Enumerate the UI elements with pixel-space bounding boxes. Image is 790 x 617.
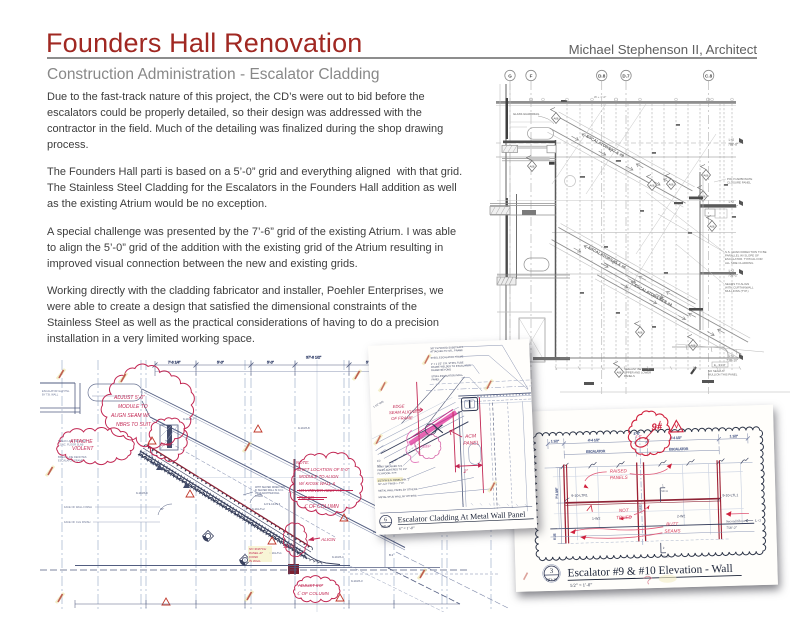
svg-text:L+0: L+0 [729, 354, 735, 358]
svg-text:SD-11: SD-11 [662, 555, 669, 558]
svg-text:EDGE: EDGE [393, 403, 405, 409]
svg-text:1 1/2”: 1 1/2” [730, 434, 738, 438]
svg-text:L+0: L+0 [729, 138, 735, 142]
svg-text:6: 6 [384, 517, 387, 523]
svg-text:9-10-PL8: 9-10-PL8 [298, 426, 310, 430]
svg-text:SHIM: SHIM [161, 442, 172, 447]
svg-text:9-10-LTL1: 9-10-LTL1 [722, 493, 738, 497]
svg-text:BUTT: BUTT [666, 521, 679, 526]
svg-text:A66: A66 [617, 370, 622, 374]
svg-text:B.2: B.2 [389, 553, 394, 557]
svg-text:NBRS TO SUIT: NBRS TO SUIT [116, 422, 152, 428]
svg-text:7’-6 1/4”: 7’-6 1/4” [168, 361, 180, 365]
svg-text:PANEL: PANEL [431, 378, 440, 381]
svg-text:W/ KIOSK WALL &: W/ KIOSK WALL & [299, 481, 336, 486]
svg-text:11¼: 11¼ [283, 544, 294, 550]
svg-text:ALL SIDE CLADDING: ALL SIDE CLADDING [725, 261, 754, 265]
svg-text:6” = 1’-0”: 6” = 1’-0” [399, 526, 415, 531]
svg-text:1 1/2”: 1 1/2” [551, 439, 559, 443]
svg-text:788’-8”: 788’-8” [728, 143, 738, 147]
svg-text:IN WALL: IN WALL [249, 559, 261, 563]
svg-text:ℂ OF COLUMN: ℂ OF COLUMN [304, 504, 339, 510]
svg-text:SD-11: SD-11 [661, 490, 668, 493]
svg-text:QD-10: QD-10 [546, 577, 557, 582]
svg-text:A66: A66 [530, 164, 535, 168]
svg-text:E - 3 1/4”: E - 3 1/4” [714, 363, 726, 367]
svg-text:9-10-PL3: 9-10-PL3 [351, 579, 363, 583]
svg-text:A66: A66 [650, 183, 655, 187]
svg-text:D.7: D.7 [622, 73, 630, 78]
svg-text:D.8: D.8 [598, 73, 606, 78]
svg-text:9-10-PL9: 9-10-PL9 [136, 491, 148, 495]
svg-text:ESCALATOR: ESCALATOR [586, 449, 606, 454]
svg-text:5’-0”: 5’-0” [267, 361, 274, 365]
svg-text:ADJUST 5’-0”: ADJUST 5’-0” [113, 395, 145, 401]
svg-text:1/2” = 1’-0”: 1/2” = 1’-0” [570, 582, 593, 588]
svg-text:7’-1 3/4”: 7’-1 3/4” [555, 488, 559, 499]
svg-text:ALIGN SEAM W/: ALIGN SEAM W/ [110, 413, 150, 419]
svg-text:FACE OF WALL FINISH: FACE OF WALL FINISH [64, 505, 92, 509]
svg-text:MULLIONS (TYP.): MULLIONS (TYP.) [725, 289, 749, 293]
svg-text:ATTACHE: ATTACHE [69, 439, 93, 445]
svg-text:A66: A66 [554, 116, 559, 120]
svg-text:QD-11: QD-11 [381, 524, 391, 528]
svg-text:2”: 2” [462, 469, 468, 475]
svg-text:F: F [530, 73, 533, 78]
svg-text:C.8: C.8 [705, 73, 713, 78]
svg-text:ℂ OF COLUMN: ℂ OF COLUMN [297, 591, 330, 596]
svg-text:GRID: GRID [638, 504, 642, 511]
svg-text:ACM: ACM [464, 433, 477, 440]
svg-text:4’-4 1/2”: 4’-4 1/2” [588, 438, 600, 442]
svg-text:VIOLENT: VIOLENT [72, 446, 94, 452]
svg-text:2-W2: 2-W2 [677, 514, 686, 518]
svg-text:1’-2”: 1’-2” [636, 434, 642, 438]
svg-text:MODULE TO ALIGN: MODULE TO ALIGN [299, 474, 339, 479]
svg-text:W + 1’-0”: W + 1’-0” [594, 95, 606, 99]
svg-text:5’-0”: 5’-0” [217, 361, 224, 365]
svg-text:758’-2”: 758’-2” [726, 526, 737, 530]
svg-text:L+2: L+2 [755, 519, 761, 523]
svg-text:G: G [508, 73, 512, 78]
svg-text:PANELS: PANELS [624, 374, 635, 378]
svg-text:ESCALATOR GAP PNL: ESCALATOR GAP PNL [42, 389, 70, 393]
svg-text:A66: A66 [710, 224, 715, 228]
svg-text:9-10-PL7: 9-10-PL7 [183, 417, 195, 421]
svg-text:9#: 9# [651, 422, 663, 433]
svg-text:BY T.B. WALL: BY T.B. WALL [42, 392, 59, 396]
svg-text:OF FRAME: OF FRAME [391, 415, 413, 421]
svg-text:9-10-PL4: 9-10-PL4 [332, 555, 344, 559]
svg-text:1-W2: 1-W2 [592, 517, 601, 521]
svg-text:NOTE:: NOTE: [296, 460, 310, 465]
svg-text:CLOSURE PANEL: CLOSURE PANEL [727, 181, 751, 185]
svg-text:30°: 30° [160, 507, 164, 511]
svg-text:1/2 9-10-PL3: 1/2 9-10-PL3 [264, 502, 281, 506]
svg-text:PANEL: PANEL [463, 440, 479, 447]
svg-text:37’-6 1/2”: 37’-6 1/2” [306, 356, 322, 360]
svg-text:FACE OF CLG FINISH: FACE OF CLG FINISH [64, 520, 90, 524]
svg-text:ADJUST 5’0”: ADJUST 5’0” [297, 583, 324, 588]
svg-text:PANELS: PANELS [610, 475, 629, 481]
svg-text:MODULE TO: MODULE TO [118, 404, 148, 410]
svg-text:A66: A66 [669, 182, 674, 186]
svg-text:9-10-LTR1: 9-10-LTR1 [571, 493, 588, 497]
svg-text:NOT: NOT [619, 508, 630, 513]
svg-text:ALIGN: ALIGN [320, 537, 336, 543]
svg-text:SEAMS: SEAMS [664, 528, 681, 533]
svg-text:A66: A66 [638, 330, 643, 334]
svg-text:9-10-LTL2: 9-10-LTL2 [252, 507, 265, 511]
svg-text:4’-4 1/2”: 4’-4 1/2” [670, 436, 682, 440]
svg-text:Second Floor: Second Floor [726, 519, 746, 524]
svg-text:A66: A66 [704, 173, 709, 177]
svg-text:SHIFT LOCATION OF 5’-0”: SHIFT LOCATION OF 5’-0” [297, 467, 350, 472]
svg-text:ESCALATOR: ESCALATOR [669, 447, 689, 452]
svg-text:MULLION THIS PANEL: MULLION THIS PANEL [708, 373, 738, 377]
svg-text:5 1/2: 5 1/2 [552, 533, 556, 540]
svg-text:RAISED: RAISED [610, 468, 628, 473]
svg-text:GLASS GUARDRAIL: GLASS GUARDRAIL [513, 112, 540, 116]
